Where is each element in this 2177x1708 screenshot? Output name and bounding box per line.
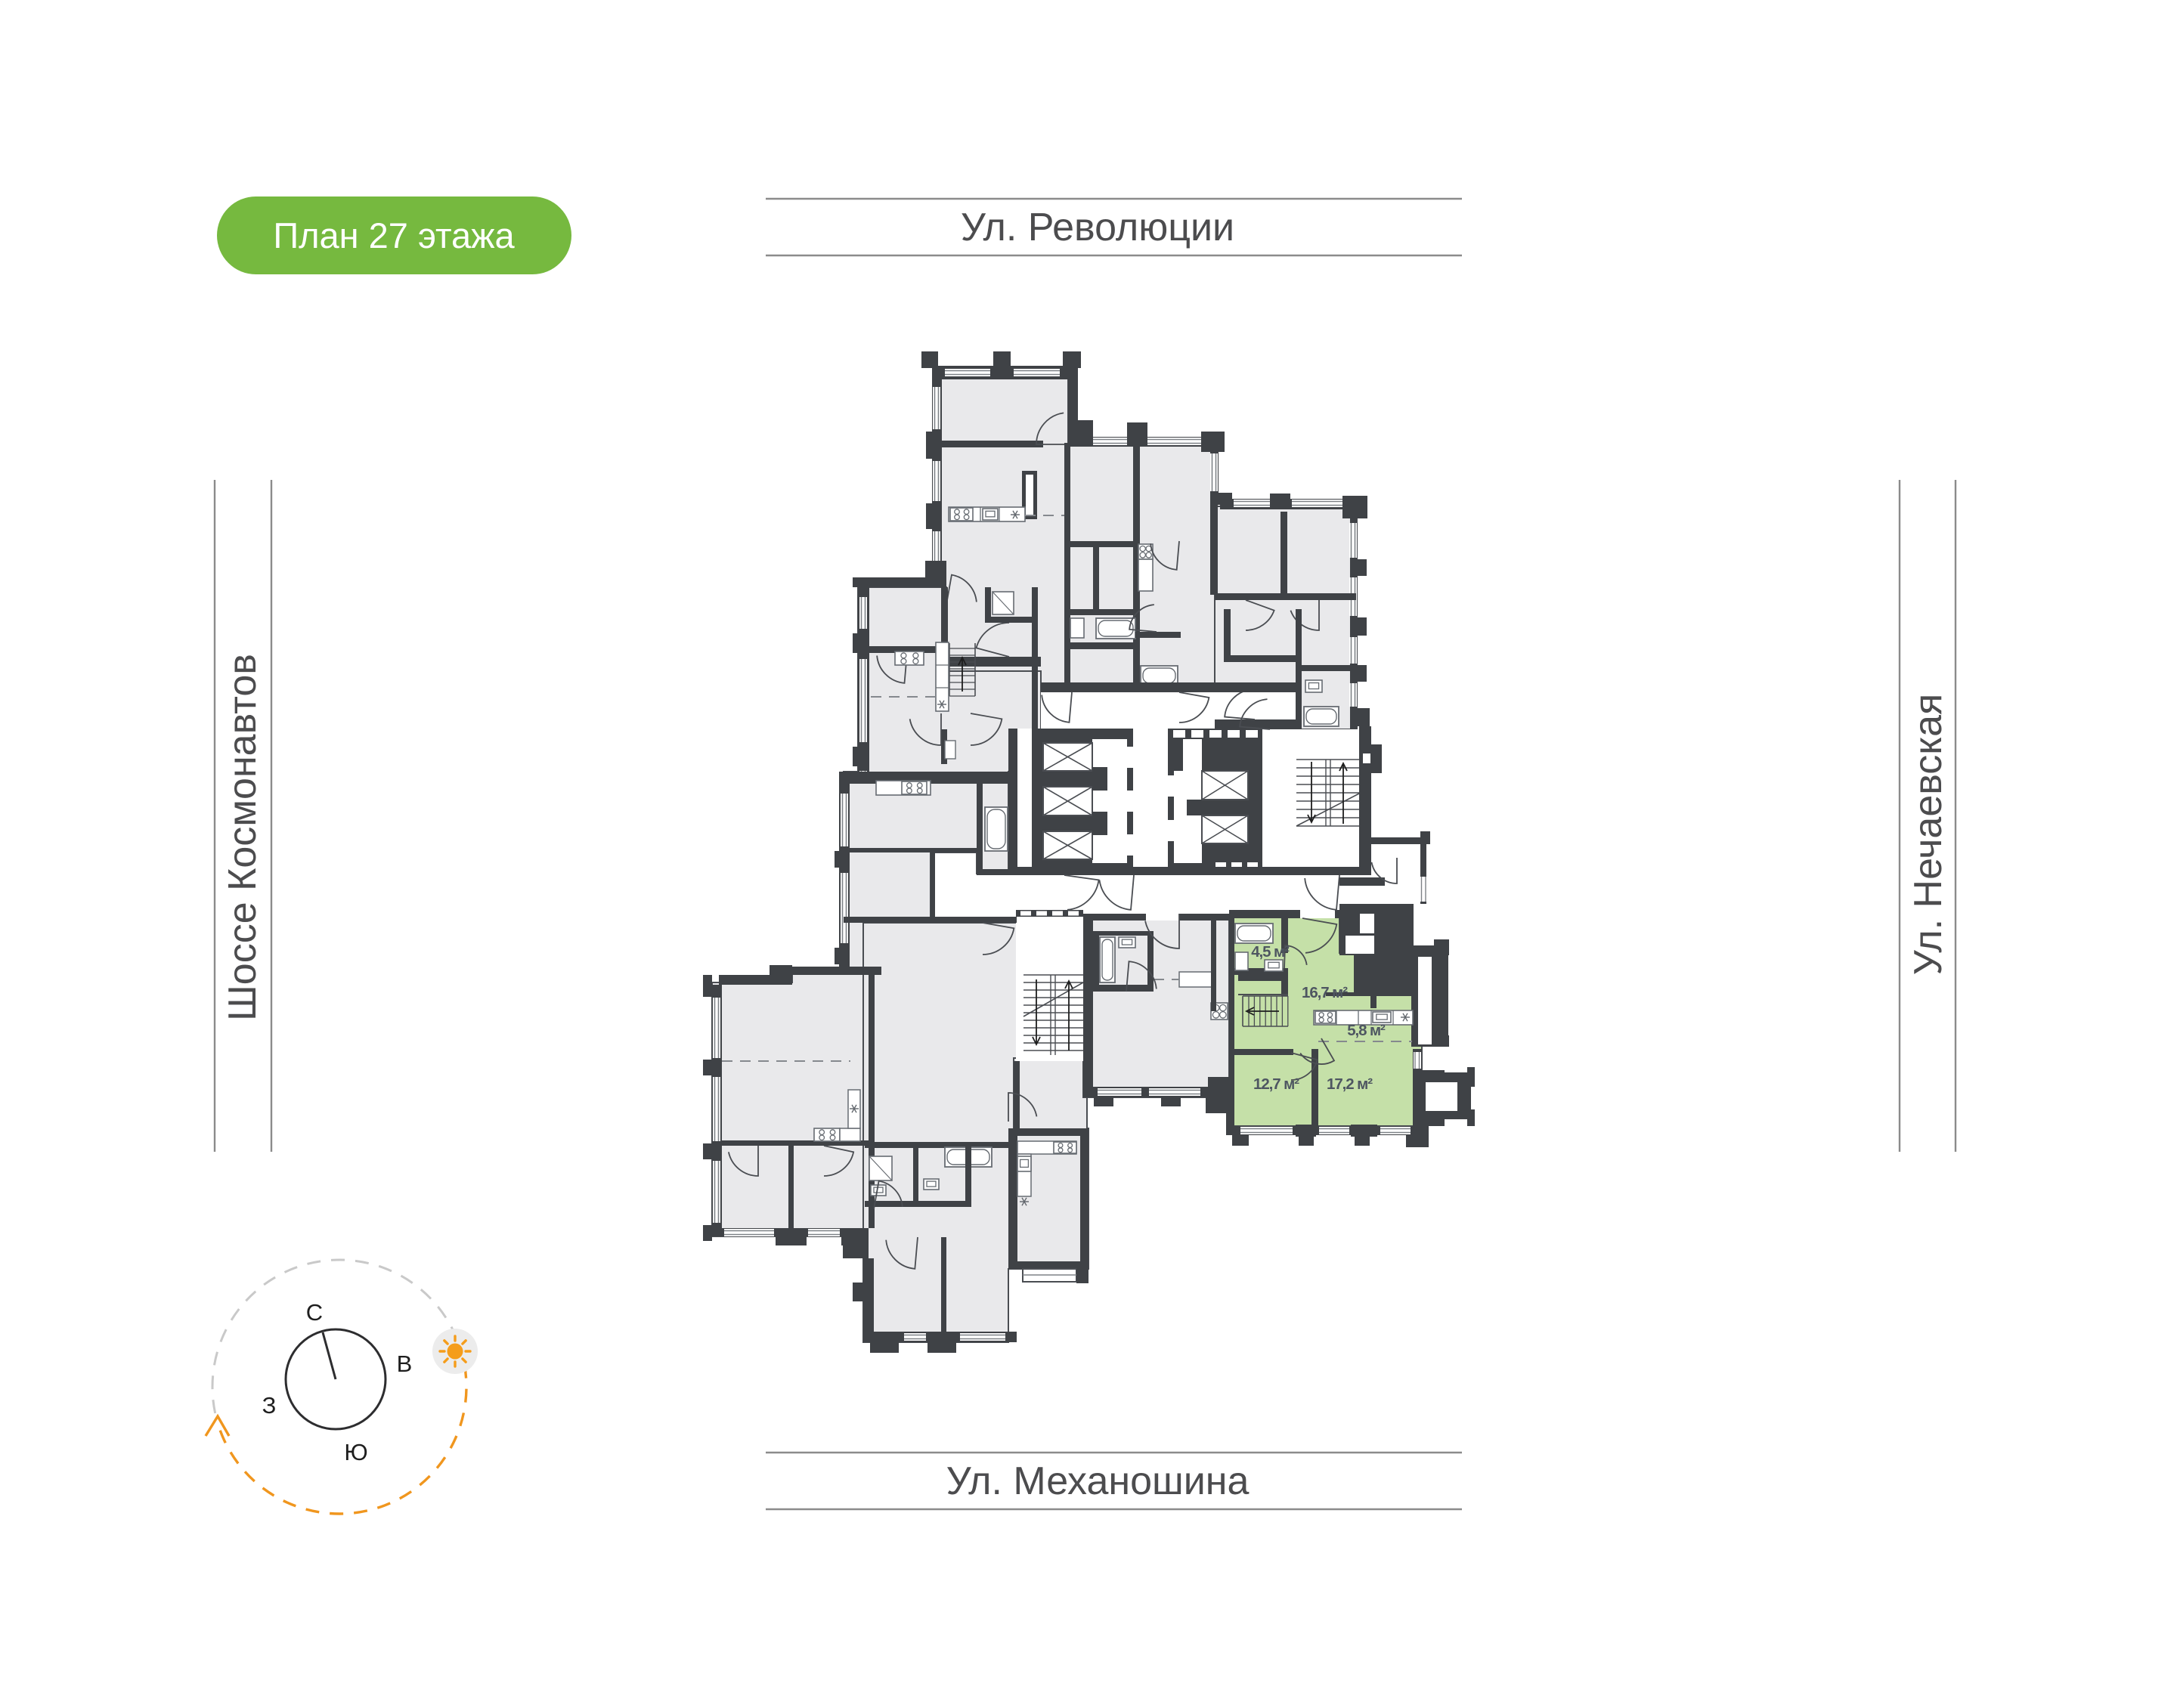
svg-text:5,8 м²: 5,8 м² bbox=[1347, 1022, 1386, 1039]
svg-text:16,7 м²: 16,7 м² bbox=[1302, 984, 1348, 1001]
svg-text:Ул. Нечаевская: Ул. Нечаевская bbox=[1906, 694, 1950, 975]
svg-text:Ул. Революции: Ул. Революции bbox=[961, 206, 1234, 249]
svg-text:Шоссе Космонавтов: Шоссе Космонавтов bbox=[221, 654, 265, 1021]
svg-text:С: С bbox=[306, 1299, 323, 1326]
svg-text:Ю: Ю bbox=[344, 1439, 367, 1465]
svg-text:4,5 м²: 4,5 м² bbox=[1251, 943, 1290, 961]
svg-text:Ул. Механошина: Ул. Механошина bbox=[946, 1459, 1250, 1503]
svg-text:В: В bbox=[397, 1351, 413, 1377]
svg-text:17,2 м²: 17,2 м² bbox=[1327, 1075, 1373, 1093]
svg-text:12,7 м²: 12,7 м² bbox=[1253, 1075, 1299, 1093]
svg-text:План 27 этажа: План 27 этажа bbox=[273, 215, 515, 255]
svg-text:З: З bbox=[262, 1392, 277, 1419]
